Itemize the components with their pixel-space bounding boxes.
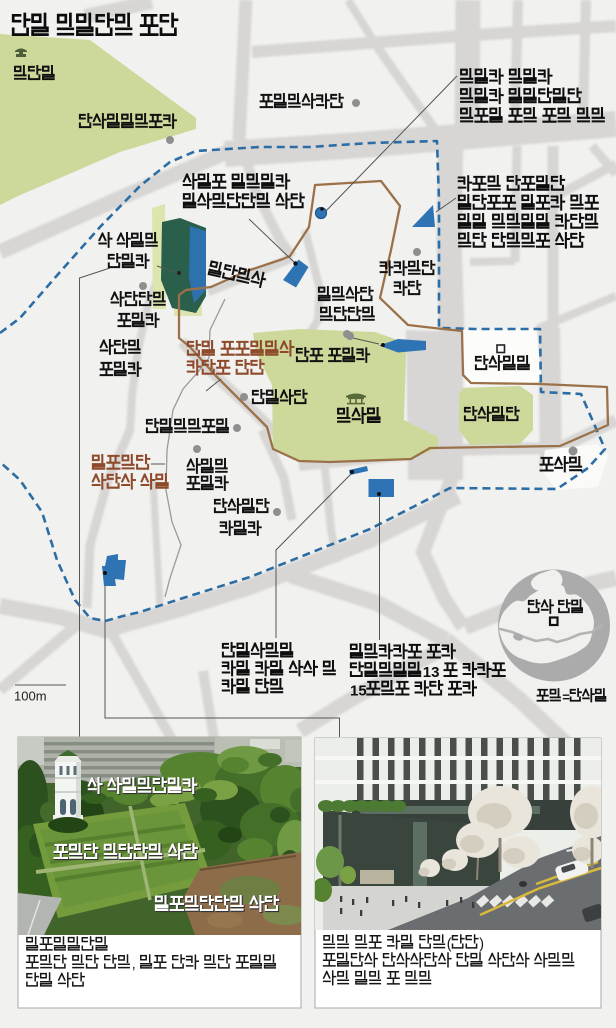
svg-text:): ) [479, 937, 484, 953]
svg-text:13: 13 [423, 664, 440, 681]
svg-text:15: 15 [350, 682, 367, 699]
svg-text:=: = [562, 689, 570, 704]
svg-text:(: ( [447, 937, 452, 953]
svg-text:,: , [132, 957, 136, 973]
svg-text:100m: 100m [14, 688, 47, 703]
